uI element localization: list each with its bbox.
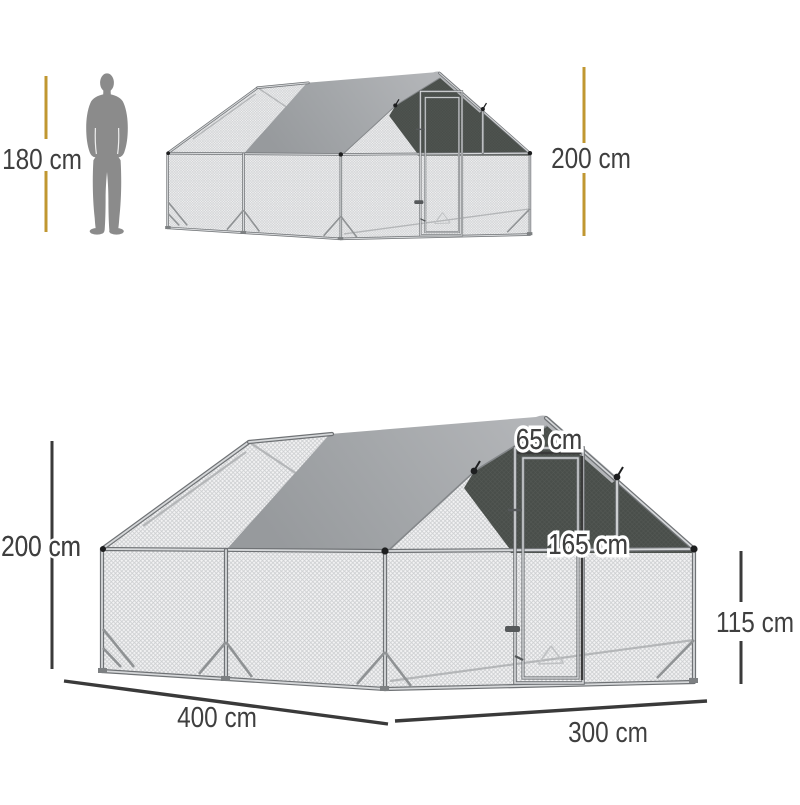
svg-text:115 cm: 115 cm <box>716 606 794 638</box>
svg-text:400 cm: 400 cm <box>177 701 257 733</box>
svg-text:165 cm: 165 cm <box>548 528 628 560</box>
svg-text:300 cm: 300 cm <box>568 716 648 748</box>
svg-text:200 cm: 200 cm <box>1 530 81 562</box>
svg-text:180 cm: 180 cm <box>2 143 82 175</box>
svg-text:65 cm: 65 cm <box>516 423 582 455</box>
svg-text:200 cm: 200 cm <box>551 142 631 174</box>
